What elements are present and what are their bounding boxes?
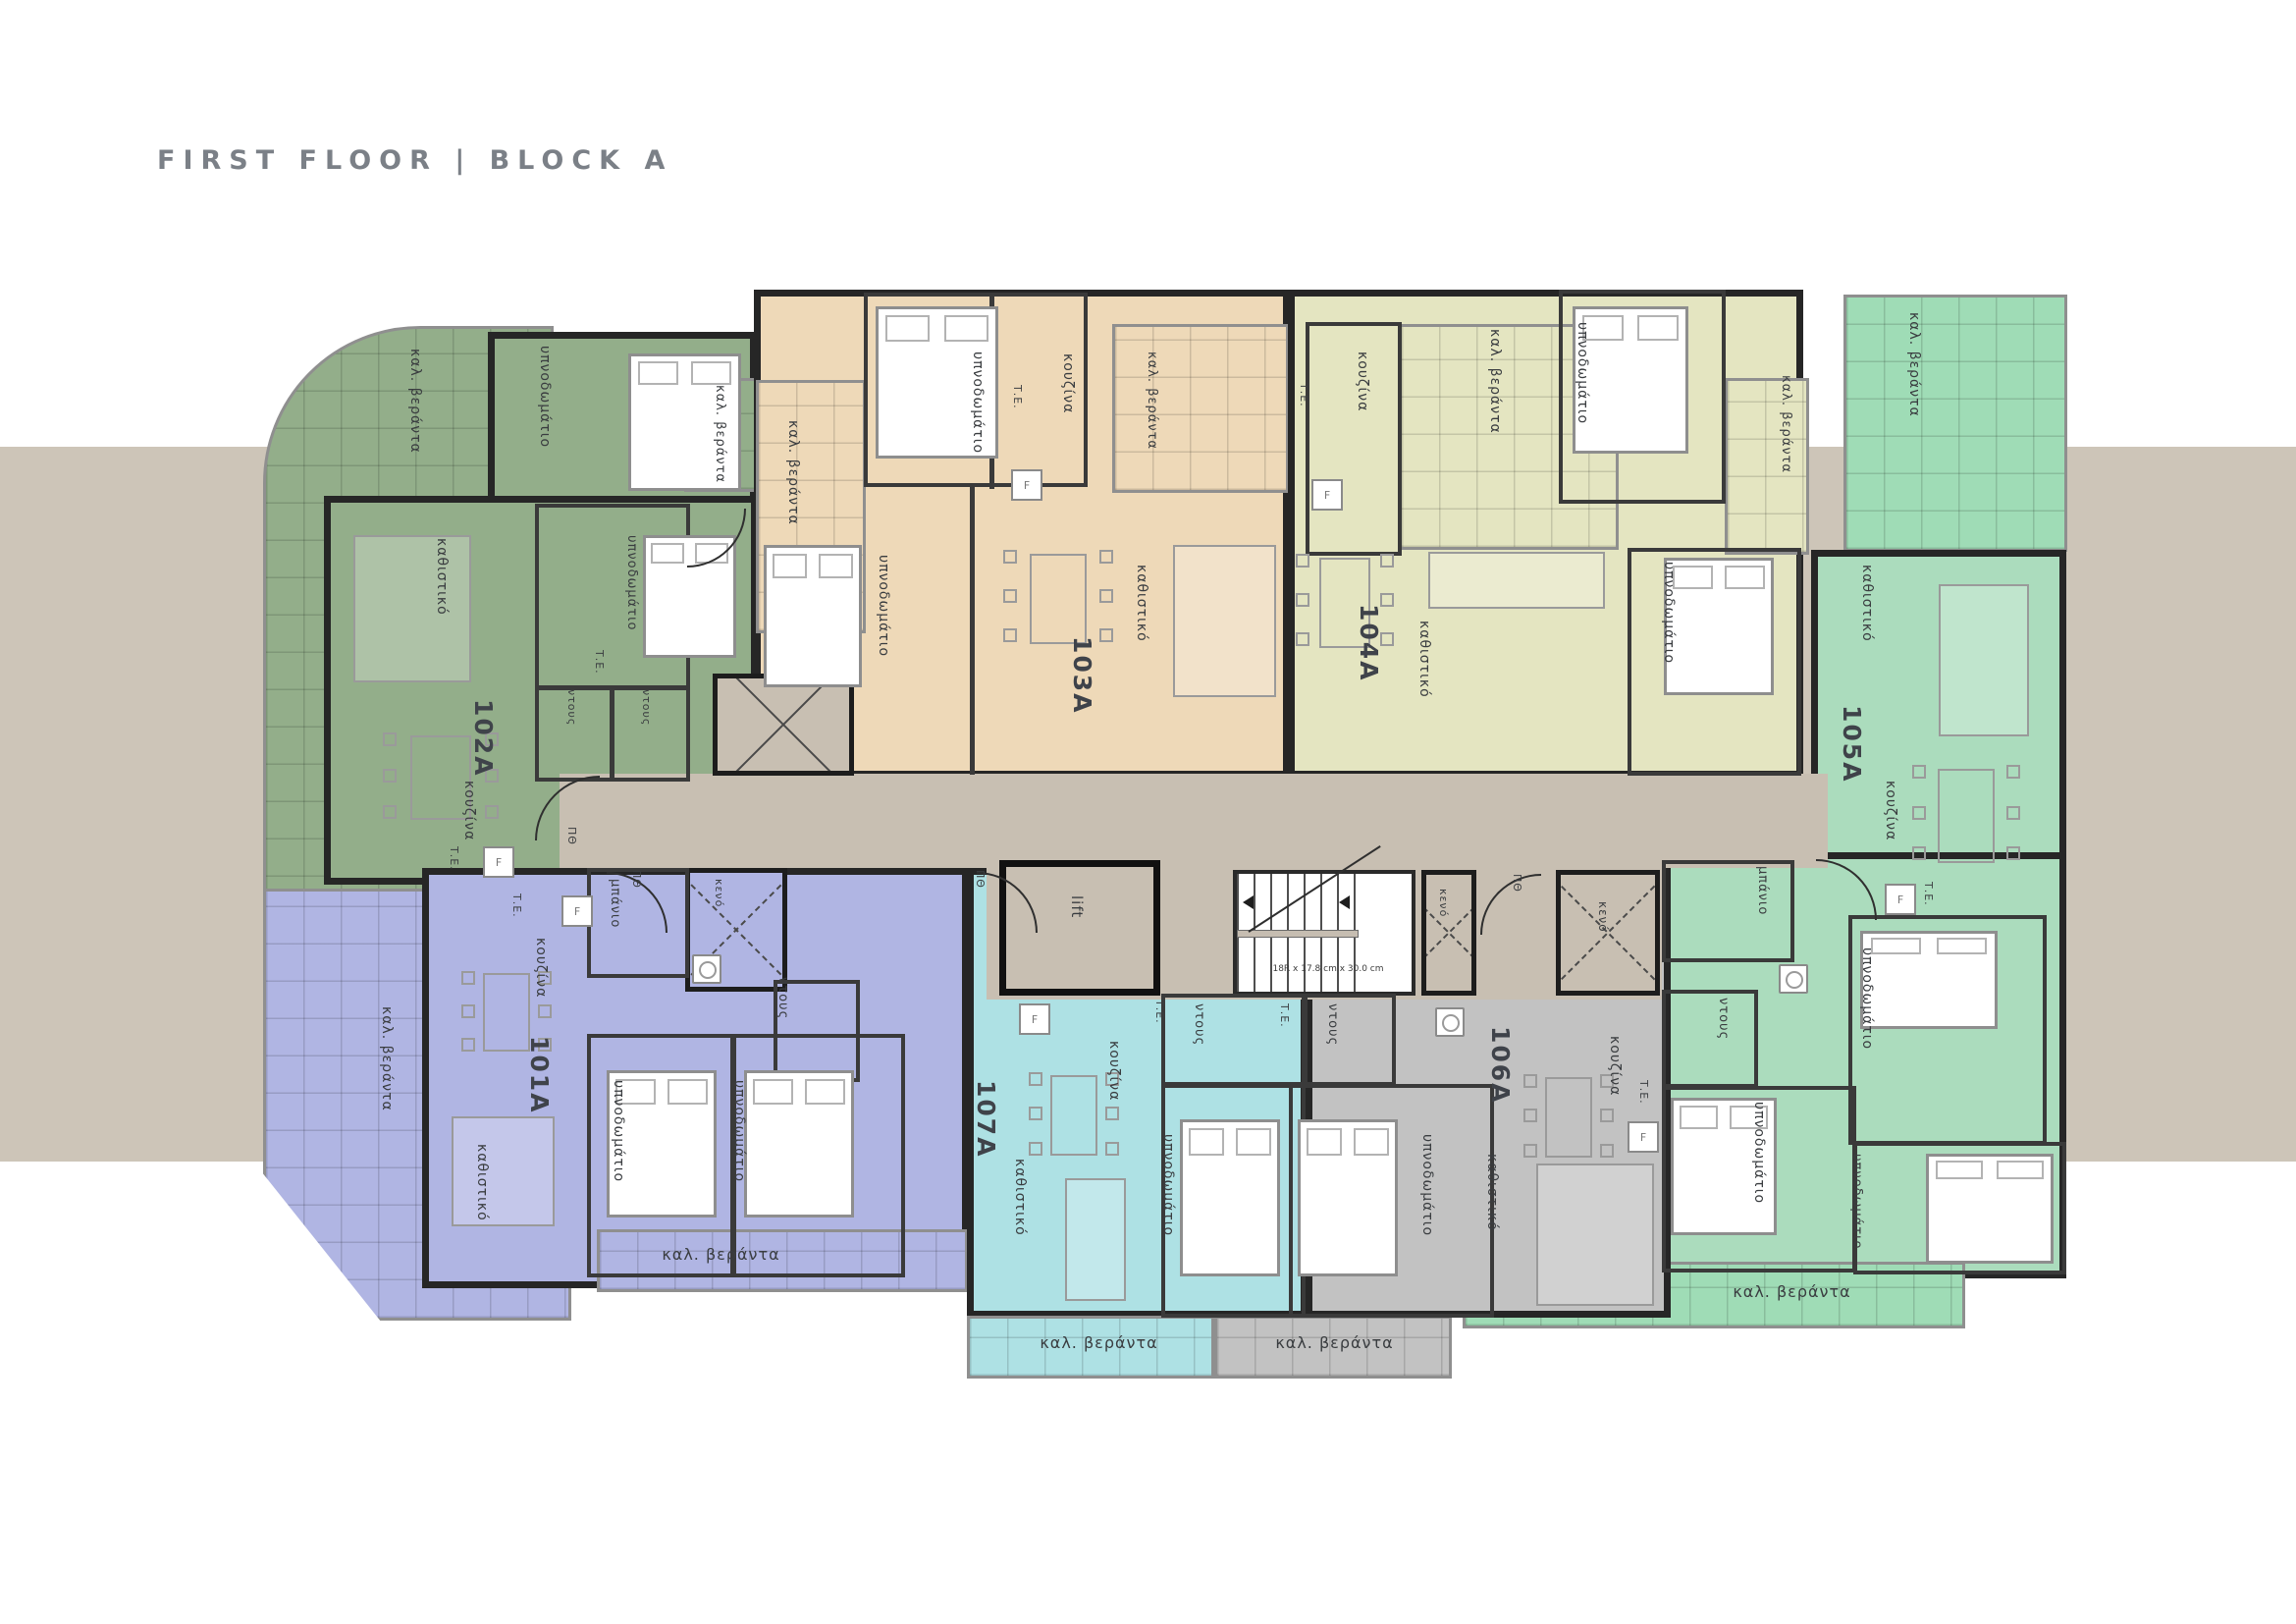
stair-arrow-up-icon (1243, 895, 1254, 909)
washing-machine-icon (1779, 964, 1808, 994)
room-label-bedroom: υπνοδωμάτιο (1849, 1154, 1864, 1249)
label-te: Τ.Ε. (448, 846, 460, 871)
room-label-bedroom: υπνοδωμάτιο (611, 1080, 626, 1182)
label-entry-door: ΠΘ (974, 870, 987, 889)
room-label-bathroom: μπάνιο (608, 879, 622, 928)
unit-number-107A: 107A (972, 1080, 1000, 1159)
room-label-bedroom: υπνοδωμάτιο (876, 555, 891, 657)
sofa-icon (353, 535, 471, 682)
label-entry-door: ΠΘ (630, 870, 643, 889)
room-label-veranda: καλ. βεράντα (379, 1006, 395, 1111)
unit-number-101A: 101A (525, 1036, 554, 1114)
room-label-bedroom: υπνοδωμάτιο (1859, 947, 1875, 1050)
sofa-icon (1536, 1164, 1654, 1306)
unit-105A-veranda-top (1843, 295, 2067, 552)
fridge-icon: F (1628, 1121, 1659, 1153)
bed-icon (1926, 1154, 2054, 1264)
stair-arrow-down-icon (1339, 895, 1350, 909)
dining-table-icon (1523, 1070, 1614, 1164)
void-cross-line (713, 674, 854, 776)
room-label-living: καθιστικό (1012, 1159, 1028, 1236)
void-shaft-top (713, 674, 854, 776)
bed-icon (1664, 558, 1774, 695)
room-105A-bathroom (1662, 860, 1794, 962)
unit-103A-veranda-top (1112, 324, 1289, 493)
label-te: Τ.Ε. (1298, 383, 1310, 407)
room-label-veranda: καλ. βεράντα (640, 1245, 802, 1264)
fridge-icon: F (1019, 1003, 1050, 1035)
room-label-kitchen: κουζίνα (1106, 1041, 1122, 1101)
room-label-veranda: καλ. βεράντα (1487, 329, 1503, 434)
room-label-shower: ντους (775, 977, 790, 1019)
sofa-icon (452, 1116, 555, 1226)
room-label-living: καθιστικό (434, 538, 450, 616)
room-label-shower: ντους (1325, 1003, 1340, 1046)
label-te: Τ.Ε. (1011, 385, 1024, 409)
room-label-veranda: καλ. βεράντα (785, 420, 801, 525)
room-label-veranda: καλ. βεράντα (1013, 1333, 1185, 1352)
unit-number-105A: 105A (1838, 705, 1866, 784)
bed-icon (1180, 1119, 1280, 1276)
bed-icon (1298, 1119, 1398, 1276)
fridge-icon: F (1885, 884, 1916, 915)
fridge-icon: F (561, 895, 593, 927)
room-label-kitchen: κουζίνα (1883, 781, 1898, 840)
room-label-living: καθιστικό (474, 1144, 490, 1221)
void-2-label: κενό (1596, 901, 1610, 933)
page-title: FIRST FLOOR | BLOCK A (157, 145, 672, 176)
room-label-bedroom: υπνοδωμάτιο (1419, 1134, 1435, 1236)
room-label-veranda: καλ. βεράντα (407, 349, 423, 454)
room-label-kitchen: κουζίνα (533, 938, 549, 998)
dining-table-icon (1003, 546, 1113, 652)
room-label-living: καθιστικό (1134, 565, 1149, 642)
sofa-icon (1065, 1178, 1126, 1301)
stair-dimension-note: 18R x 17.8 cm x 30.0 cm (1245, 964, 1412, 974)
fridge-icon: F (1311, 479, 1343, 511)
room-label-living: καθιστικό (1859, 565, 1875, 642)
label-te: Τ.Ε. (510, 893, 523, 918)
sofa-icon (1173, 545, 1276, 697)
room-label-kitchen: κουζίνα (1355, 352, 1370, 411)
room-label-kitchen: κουζίνα (461, 781, 477, 840)
room-label-living: καθιστικό (1416, 621, 1432, 698)
room-label-bedroom: υπνοδωμάτιο (1160, 1134, 1176, 1236)
void-shaft-2 (1556, 870, 1660, 996)
room-label-bedroom: υπνοδωμάτιο (1575, 322, 1590, 424)
stair-landing-divider (1237, 930, 1359, 938)
room-label-shower: ντους (565, 689, 578, 726)
bed-icon (764, 545, 862, 687)
room-label-veranda: καλ. βεράντα (1249, 1333, 1420, 1352)
bed-icon (744, 1070, 854, 1218)
room-label-veranda: καλ. βεράντα (1145, 352, 1159, 450)
room-label-void: κενό (713, 879, 725, 907)
room-label-living: καθιστικό (1484, 1154, 1500, 1231)
room-label-bathroom: μπάνιο (1755, 866, 1770, 915)
void-1-label: κενό (1437, 889, 1450, 917)
room-label-bedroom: υπνοδωμάτιο (1751, 1102, 1767, 1204)
sofa-icon (1939, 584, 2029, 736)
room-label-veranda: καλ. βεράντα (1779, 375, 1793, 473)
room-label-veranda: καλ. βεράντα (1906, 312, 1922, 417)
room-label-shower: ντους (1716, 998, 1731, 1040)
wall-103A-bedroom2 (970, 486, 975, 775)
room-label-bedroom: υπνοδωμάτιο (1661, 562, 1677, 664)
label-te: Τ.Ε. (1922, 882, 1935, 906)
label-entry-door: ΠΘ (565, 827, 578, 845)
washing-machine-icon (1435, 1007, 1465, 1037)
room-106A-shower (1304, 994, 1396, 1086)
unit-104A-veranda-small (1725, 378, 1809, 555)
washing-machine-icon (692, 954, 721, 984)
room-label-bedroom: υπνοδωμάτιο (624, 535, 639, 630)
unit-number-104A: 104A (1355, 604, 1383, 682)
label-te: Τ.Ε. (593, 650, 606, 675)
room-label-kitchen: κουζίνα (1607, 1036, 1623, 1096)
room-label-shower: ντους (640, 689, 653, 726)
unit-number-106A: 106A (1486, 1026, 1515, 1105)
label-te: Τ.Ε. (1153, 1000, 1166, 1024)
fridge-icon: F (483, 846, 514, 878)
dining-table-icon (1912, 761, 2020, 871)
room-label-shower: ντους (1192, 1003, 1206, 1046)
label-entry-door: ΠΘ (1511, 874, 1523, 893)
sofa-icon (1428, 552, 1605, 609)
room-104A-kitchen (1306, 322, 1402, 556)
label-te: Τ.Ε. (1637, 1080, 1650, 1105)
room-label-veranda: καλ. βεράντα (713, 385, 727, 483)
unit-number-102A: 102A (469, 699, 498, 778)
fridge-icon: F (1011, 469, 1042, 501)
room-label-veranda: καλ. βεράντα (1706, 1282, 1878, 1301)
staircase: 18R x 17.8 cm x 30.0 cm (1233, 870, 1415, 996)
room-label-bedroom: υπνοδωμάτιο (537, 346, 553, 448)
room-label-kitchen: κουζίνα (1060, 353, 1076, 413)
room-label-bedroom: υπνοδωμάτιο (970, 352, 986, 454)
lift-label: lift (1068, 895, 1086, 918)
room-105A-shower (1662, 990, 1758, 1088)
floor-plan-canvas: FIRST FLOOR | BLOCK A lift 18R x 17.8 cm (0, 0, 2296, 1624)
unit-number-103A: 103A (1068, 636, 1096, 715)
room-label-bedroom: υπνοδωμάτιο (731, 1080, 747, 1182)
label-te: Τ.Ε. (1278, 1003, 1291, 1028)
bed-icon (1860, 931, 1998, 1029)
